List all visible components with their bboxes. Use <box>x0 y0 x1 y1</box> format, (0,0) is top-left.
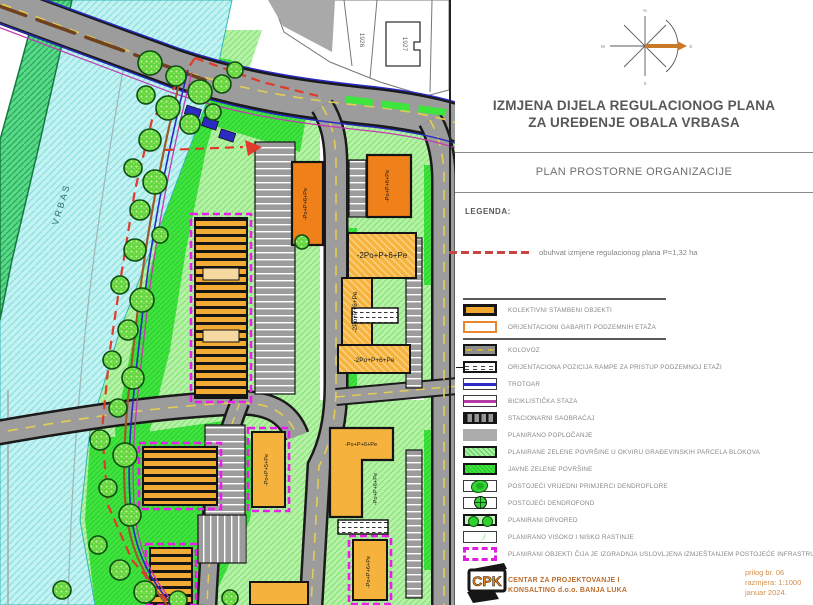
legend-row-gabarit: ORIJENTACIONI GABARITI PODZEMNIH ETAŽA <box>463 321 808 333</box>
legend-label: POSTOJEĆI DENDROFOND <box>508 500 594 507</box>
legend-row-drvored: PLANIRANI DRVORED <box>463 514 808 526</box>
company-line-2: KONSALTING d.o.o. BANJA LUKA <box>508 586 627 596</box>
cpk-logo: CPK <box>466 561 514 603</box>
legend-row-poplocanje: PLANIRANO POPLOČANJE <box>463 429 808 441</box>
building-label: -Po+P+6+Pe <box>373 473 379 505</box>
building-label: -Po+P+6+Pe <box>366 556 372 588</box>
legend-label: PLANIRANI DRVORED <box>508 517 578 524</box>
compass-south-label: S <box>643 81 646 86</box>
legend-heading: LEGENDA: <box>465 207 511 216</box>
legend-label: TROTOAR <box>508 381 540 388</box>
legend-divider <box>463 298 666 300</box>
legend-swatch-dendrofond <box>463 497 497 509</box>
scope-note-label: obuhvat izmjene regulacionog plana P=1,3… <box>539 248 698 257</box>
building-label: -Po+P+6+Pe <box>345 442 377 448</box>
legend-divider <box>463 338 666 340</box>
legend-swatch-kolektivni <box>463 304 497 316</box>
building-label: -Po+P+6+Pe <box>385 170 391 202</box>
divider <box>455 152 813 153</box>
legend-label: ORIJENTACIONA POZICIJA RAMPE ZA PRISTUP … <box>508 364 722 371</box>
company-line-1: CENTAR ZA PROJEKTOVANJE I <box>508 576 627 586</box>
legend-swatch-trotoar <box>463 378 497 390</box>
legend-label: BICIKLISTIČKA STAZA <box>508 398 577 405</box>
company-name: CENTAR ZA PROJEKTOVANJE I KONSALTING d.o… <box>508 576 627 595</box>
attachment-number: prilog br. 06 <box>745 568 801 578</box>
legend-panel: N S W E IZMJENA DIJELA REGULACIONOG PLAN… <box>455 0 813 605</box>
legend-swatch-rampa <box>463 361 497 373</box>
title-line-1: IZMJENA DIJELA REGULACIONOG PLANA <box>455 97 813 114</box>
parcel-label: 1927 <box>401 37 408 52</box>
compass-east-label: E <box>689 44 692 49</box>
building-label: -2Po+P+6+Pe <box>357 251 408 260</box>
legend-label: ORIJENTACIONI GABARITI PODZEMNIH ETAŽA <box>508 324 656 331</box>
legend-swatch-dendroflora <box>463 480 497 492</box>
compass-north-label: N <box>643 8 646 13</box>
legend-swatch-poplocanje <box>463 429 497 441</box>
site-plan-map: 1926 1927 <box>0 0 455 605</box>
legend-swatch-zelene-parcele <box>463 446 497 458</box>
building-label: -2Po+P+6+Pe <box>352 291 359 332</box>
legend-row-stacionarni: STACIONARNI SAOBRAĆAJ <box>463 412 808 424</box>
plan-subtitle: PLAN PROSTORNE ORGANIZACIJE <box>455 166 813 178</box>
legend-swatch-rastinje <box>463 531 497 543</box>
legend-row-rampa: ORIJENTACIONA POZICIJA RAMPE ZA PRISTUP … <box>463 361 808 373</box>
legend-row-dendroflora: POSTOJEĆI VRIJEDNI PRIMJERCI DENDROFLORE <box>463 480 808 492</box>
compass-east-arrow <box>678 42 687 51</box>
legend-swatch-uslovljeni <box>463 547 497 561</box>
sheet-date: januar 2024. <box>745 588 801 598</box>
legend-row-uslovljeni: PLANIRANI OBJEKTI ČIJA JE IZGRADNJA USLO… <box>463 548 808 560</box>
legend-label: PLANIRANE ZELENE POVRŠINE U OKVIRU GRAĐE… <box>508 449 760 456</box>
scope-note-row: obuhvat izmjene regulacionog plana P=1,3… <box>449 248 698 257</box>
plan-sheet: 1926 1927 <box>0 0 813 605</box>
legend-label: PLANIRANO POPLOČANJE <box>508 432 592 439</box>
legend-row-trotoar: TROTOAR <box>463 378 808 390</box>
divider <box>455 192 813 193</box>
legend-swatch-javne-zelene <box>463 463 497 475</box>
building-label: -Po+P+6+Pe <box>303 188 309 220</box>
legend-label: KOLOVOZ <box>508 347 540 354</box>
legend-row-rastinje: PLANIRANO VISOKO I NISKO RASTINJE <box>463 531 808 543</box>
legend-label: POSTOJEĆI VRIJEDNI PRIMJERCI DENDROFLORE <box>508 483 668 490</box>
legend-swatch-gabarit <box>463 321 497 333</box>
scope-red-dash-swatch <box>449 251 529 254</box>
legend-row-kolovoz: KOLOVOZ <box>463 344 808 356</box>
title-line-2: ZA UREĐENJE OBALA VRBASA <box>455 114 813 131</box>
sheet-meta: prilog br. 06 razmjera: 1:1000 januar 20… <box>745 568 801 597</box>
building-label: -2Po+P+6+Pe <box>353 357 394 364</box>
legend-row-javne-zelene: JAVNE ZELENE POVRŠINE <box>463 463 808 475</box>
sheet-scale: razmjera: 1:1000 <box>745 578 801 588</box>
legend-row-biciklisticka: BICIKLISTIČKA STAZA <box>463 395 808 407</box>
page-title: IZMJENA DIJELA REGULACIONOG PLANA ZA URE… <box>455 97 813 131</box>
legend-row-zelene-parcele: PLANIRANE ZELENE POVRŠINE U OKVIRU GRAĐE… <box>463 446 808 458</box>
legend-list: KOLEKTIVNI STAMBENI OBJEKTI ORIJENTACION… <box>463 297 808 565</box>
building-label: -Po+P+5+Pe <box>264 454 270 486</box>
legend-swatch-drvored <box>463 514 497 526</box>
legend-label: JAVNE ZELENE POVRŠINE <box>508 466 593 473</box>
legend-swatch-biciklisticka <box>463 395 497 407</box>
compass-rose: N S W E <box>590 3 700 89</box>
legend-swatch-stacionarni <box>463 412 497 424</box>
legend-row-kolektivni: KOLEKTIVNI STAMBENI OBJEKTI <box>463 304 808 316</box>
compass-west-label: W <box>601 44 606 49</box>
legend-label: PLANIRANI OBJEKTI ČIJA JE IZGRADNJA USLO… <box>508 551 813 558</box>
legend-label: PLANIRANO VISOKO I NISKO RASTINJE <box>508 534 634 541</box>
logo-text: CPK <box>472 573 502 589</box>
parcel-label: 1926 <box>358 33 365 48</box>
legend-label: KOLEKTIVNI STAMBENI OBJEKTI <box>508 307 612 314</box>
legend-label: STACIONARNI SAOBRAĆAJ <box>508 415 595 422</box>
legend-row-dendrofond: POSTOJEĆI DENDROFOND <box>463 497 808 509</box>
legend-swatch-kolovoz <box>463 344 497 356</box>
